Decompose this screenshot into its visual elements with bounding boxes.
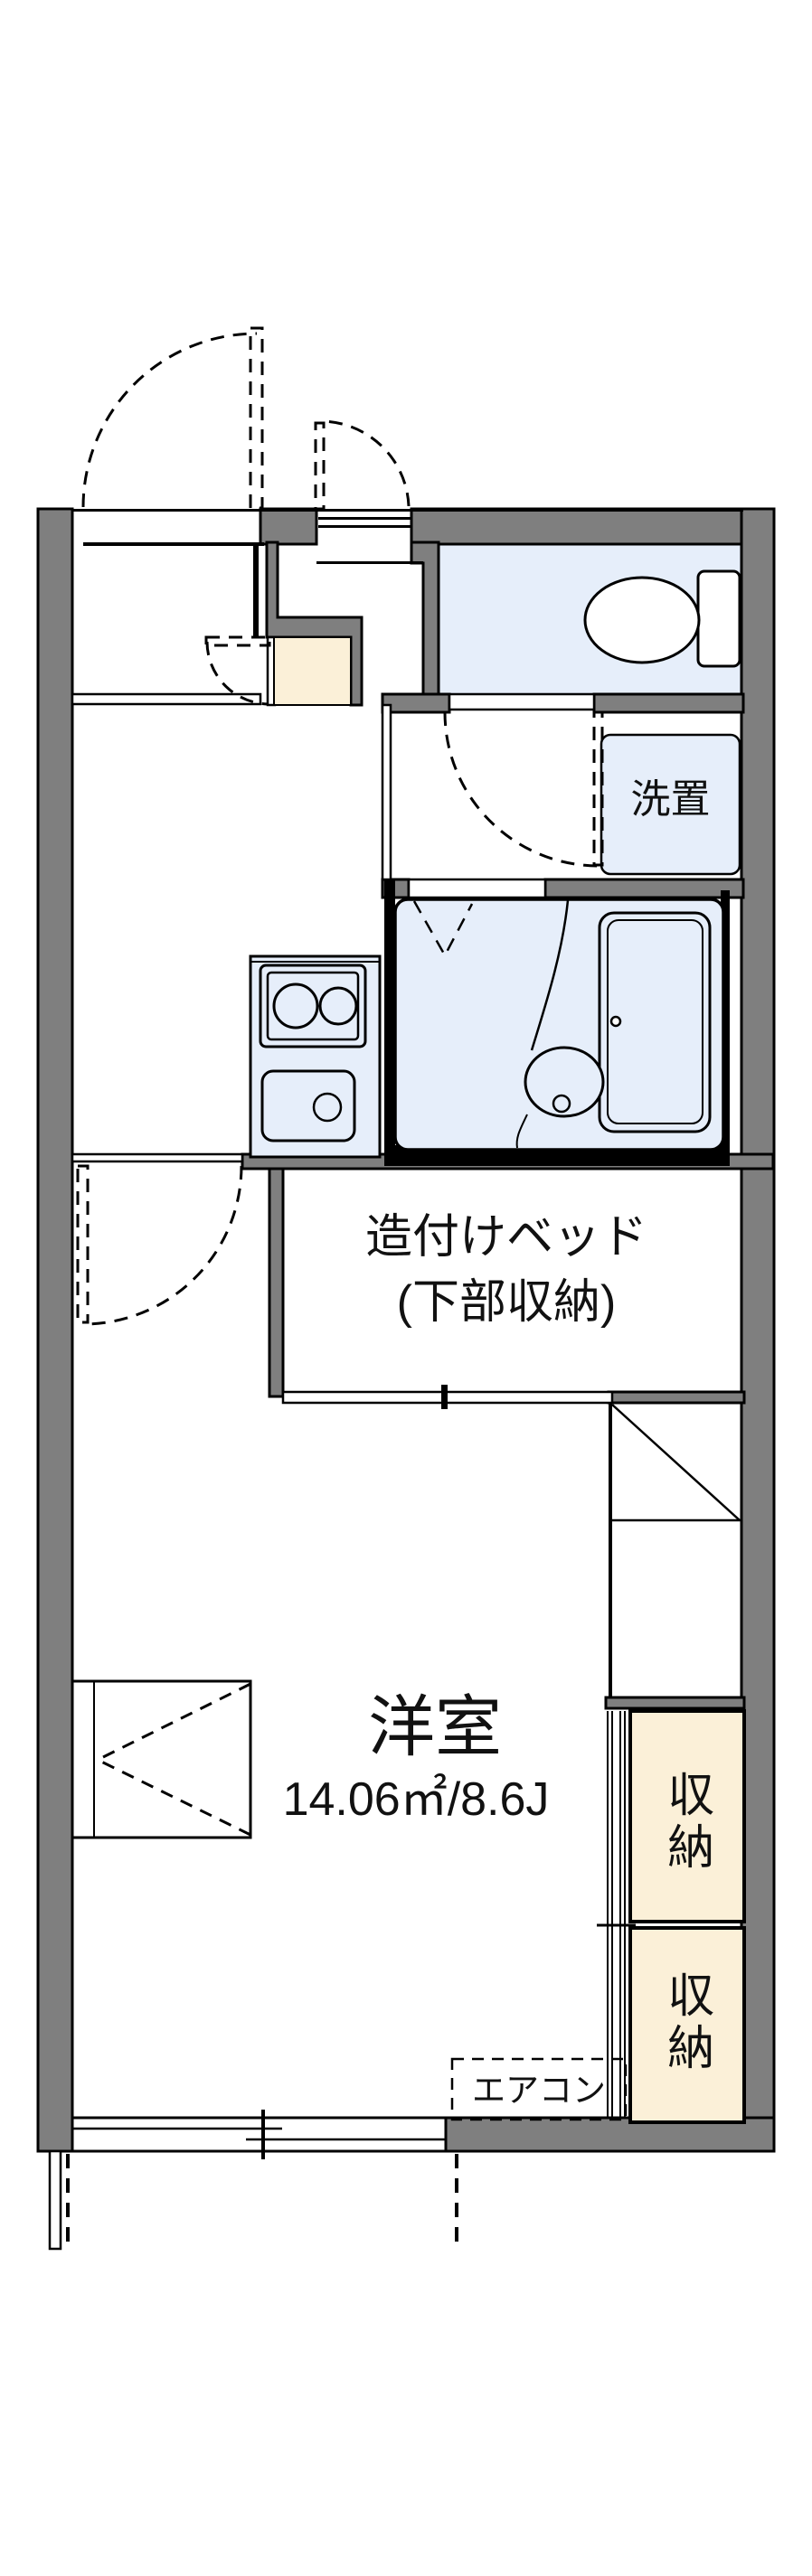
top-facade-line <box>72 509 743 512</box>
wall-top-mid <box>260 509 316 544</box>
built-in-bed-label-line2: (下部収納) <box>298 1276 714 1330</box>
kitchen-unit <box>250 956 380 1157</box>
washer-space-label: 洗置 <box>601 777 740 823</box>
bath-door-opening <box>409 879 545 898</box>
entry-room-bottom-track <box>72 694 260 704</box>
genkan-closet-door-leaf <box>206 637 269 645</box>
bath-wall-left <box>384 879 395 1166</box>
niche-diagonal <box>612 1405 740 1520</box>
storage-upper-label: 収納 <box>658 1770 713 1896</box>
niche-left-line <box>609 1403 612 1697</box>
bath-washbowl-drain <box>553 1095 570 1112</box>
toilet-fixture <box>585 571 740 666</box>
wall-bath-top-right <box>545 879 743 898</box>
wall-toilet-bottom-left <box>382 694 449 712</box>
entry-door-arc <box>320 421 409 506</box>
balcony-wall-stub <box>50 2151 61 2249</box>
room-door-leaf <box>78 1166 88 1322</box>
window-frame <box>72 2118 446 2151</box>
entry-door-wide-leaf <box>250 328 262 508</box>
hall-washer-partition <box>382 705 391 879</box>
window-center-tick <box>261 2110 265 2159</box>
hall-room-opening <box>72 1154 242 1161</box>
main-room-area: 14.06㎡/8.6J <box>190 1773 642 1828</box>
entry-room-top-line <box>83 542 264 546</box>
entry-door-sill-2 <box>318 525 411 528</box>
bathroom <box>384 879 730 1166</box>
main-room-name: 洋室 <box>299 1688 571 1765</box>
floor-plan: 洗置 造付けベッド (下部収納) 洋室 14.06㎡/8.6J 収納 収納 エア… <box>0 0 812 2576</box>
south-window <box>72 2110 446 2159</box>
genkan-tile <box>274 637 351 705</box>
built-in-bed-label-line1: 造付けベッド <box>298 1211 714 1265</box>
toilet-door-opening <box>449 694 594 710</box>
doors <box>78 328 602 1324</box>
wall-right-outer <box>741 509 774 2151</box>
aircon-label: エアコン <box>452 2072 626 2111</box>
toilet-tank <box>698 571 740 666</box>
toilet-bowl <box>585 578 699 663</box>
entry-door-sill-1 <box>318 517 411 520</box>
room-door-arc <box>83 1166 241 1324</box>
entry-door-wide-arc <box>83 334 257 507</box>
wall-left-outer <box>38 509 72 2151</box>
wall-top-right <box>411 509 743 544</box>
wall-bedroom-left <box>269 1169 283 1396</box>
toilet-door-arc <box>445 712 599 866</box>
wall-toilet-bottom-right <box>594 694 743 712</box>
balcony-marks <box>50 2151 457 2249</box>
wall-niche-top <box>609 1392 744 1403</box>
wall-toilet-left <box>411 542 439 694</box>
storage-lower-label: 収納 <box>658 1970 713 2097</box>
bed-opening-tick <box>441 1385 448 1409</box>
entry-door-leaf <box>316 423 324 509</box>
wall-niche-bottom <box>606 1697 744 1708</box>
entry-step-line <box>316 561 423 564</box>
kitchen-counter <box>250 956 380 1157</box>
entry-partition <box>253 542 259 637</box>
bathtub-knob <box>611 1017 620 1026</box>
